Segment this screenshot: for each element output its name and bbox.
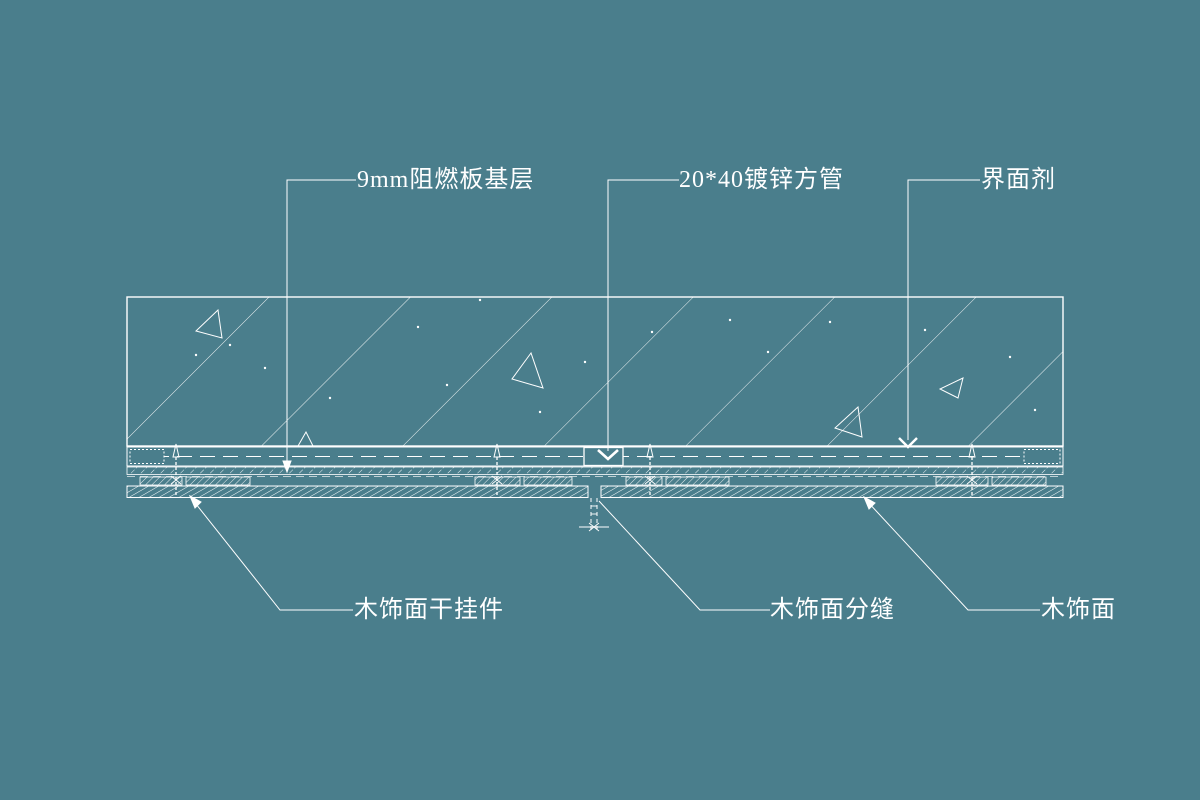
veneer-panel-left	[127, 486, 588, 498]
square-tube-cross-section	[584, 448, 623, 466]
leader-veneer-seam	[599, 501, 770, 610]
leader-dry-hang-clip	[190, 496, 353, 610]
board-base-layer	[127, 467, 1063, 477]
tube-end-left	[130, 450, 164, 464]
label-interface-agent: 界面剂	[981, 166, 1056, 194]
dry-hang-clip-layer	[140, 477, 1046, 485]
leader-veneer	[864, 497, 1040, 610]
cad-detail-drawing-viewport: 9mm阻燃板基层 20*40镀锌方管 界面剂 木饰面干挂件 木饰面分缝 木饰面	[0, 0, 1200, 800]
square-tube-layer	[127, 447, 1063, 466]
wood-veneer-layer	[127, 486, 1063, 498]
label-veneer: 木饰面	[1041, 596, 1116, 624]
label-square-tube: 20*40镀锌方管	[679, 166, 844, 194]
tube-end-right	[1024, 450, 1060, 464]
concrete-wall-section	[127, 297, 1063, 446]
veneer-panel-right	[601, 486, 1063, 498]
wall-finish-section-drawing	[0, 0, 1200, 800]
label-veneer-seam: 木饰面分缝	[770, 596, 895, 624]
label-dry-hang-clip: 木饰面干挂件	[354, 596, 504, 624]
veneer-seam-mark	[579, 498, 609, 531]
label-board-base: 9mm阻燃板基层	[357, 166, 534, 194]
